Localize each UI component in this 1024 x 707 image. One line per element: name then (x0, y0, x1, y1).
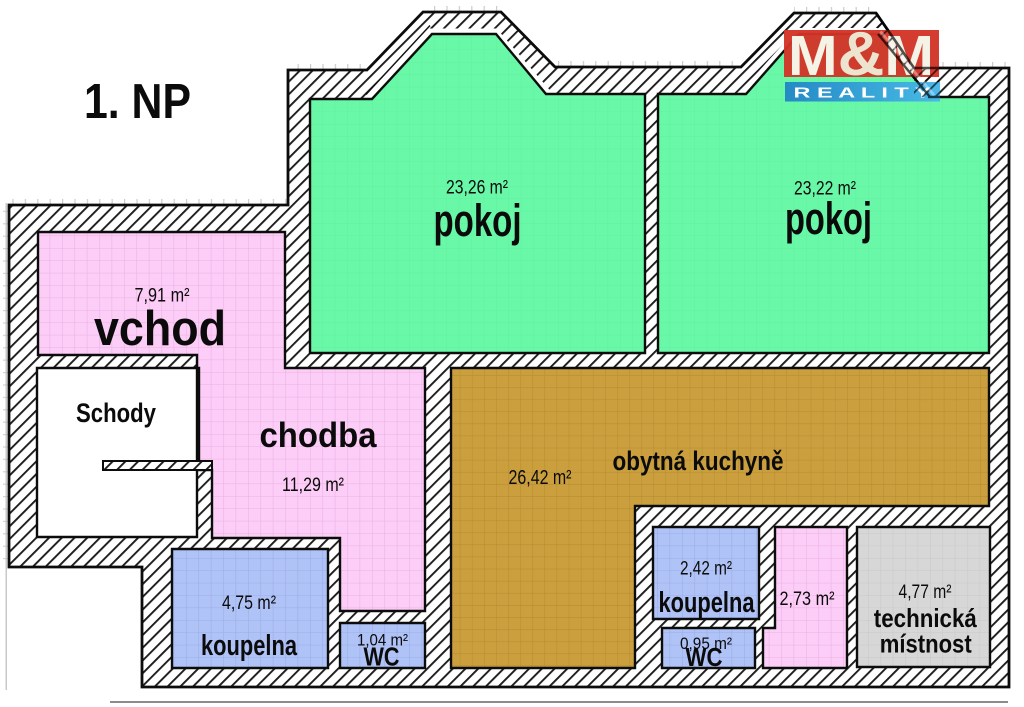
svg-text:1. NP: 1. NP (84, 75, 191, 129)
svg-text:pokoj: pokoj (434, 195, 522, 246)
svg-text:R E A L I T Y: R E A L I T Y (794, 86, 932, 102)
svg-text:koupelna: koupelna (201, 630, 298, 662)
svg-text:místnost: místnost (880, 629, 972, 659)
svg-text:Schody: Schody (76, 398, 156, 428)
svg-text:vchod: vchod (94, 302, 226, 356)
svg-text:chodba: chodba (260, 416, 377, 455)
svg-text:4,75 m²: 4,75 m² (222, 593, 276, 614)
svg-text:4,77 m²: 4,77 m² (899, 582, 952, 603)
svg-text:WC: WC (364, 642, 400, 672)
svg-text:pokoj: pokoj (785, 193, 872, 244)
svg-text:WC: WC (686, 642, 723, 672)
svg-text:26,42 m²: 26,42 m² (509, 467, 572, 489)
svg-text:obytná kuchyně: obytná kuchyně (613, 446, 784, 476)
svg-text:11,29 m²: 11,29 m² (282, 475, 344, 496)
svg-text:2,42 m²: 2,42 m² (680, 559, 732, 580)
svg-text:2,73 m²: 2,73 m² (780, 589, 835, 610)
svg-text:M&M: M&M (788, 20, 934, 89)
svg-text:koupelna: koupelna (659, 587, 756, 619)
